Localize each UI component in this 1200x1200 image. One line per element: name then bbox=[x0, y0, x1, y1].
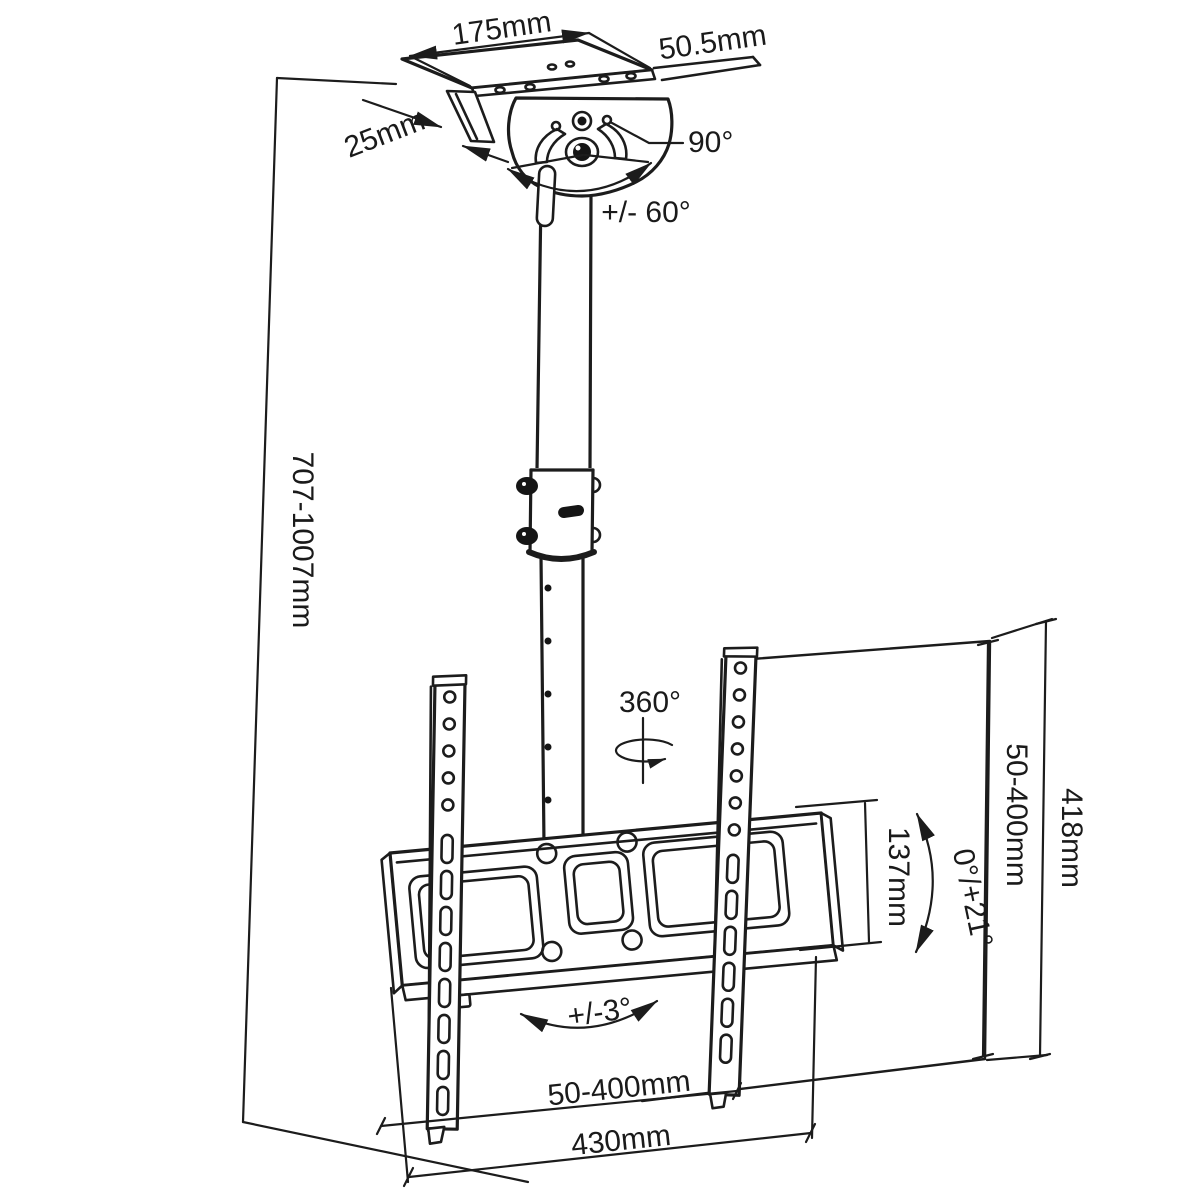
rail-hole bbox=[731, 770, 742, 781]
dim-label-418mm: 418mm bbox=[1055, 788, 1088, 888]
extension-pole-lower bbox=[541, 550, 583, 845]
rail-hole bbox=[442, 799, 453, 810]
dim-level-adjust-range: +/-3° bbox=[521, 992, 657, 1034]
locking-knob bbox=[516, 477, 538, 495]
hinge-slot-tab bbox=[536, 166, 555, 227]
rail-slot bbox=[724, 927, 736, 955]
diagram-canvas: 175mm 50.5mm 25mm 90° +/- 60° 707-1007mm… bbox=[0, 0, 1200, 1200]
dim-label-50-400mm-horizontal: 50-400mm bbox=[546, 1065, 692, 1113]
rail-slot bbox=[439, 979, 450, 1007]
rail-hole bbox=[444, 718, 455, 729]
dim-label-90deg: 90° bbox=[688, 126, 733, 159]
dim-label-50-400mm-vertical: 50-400mm bbox=[1000, 743, 1033, 886]
rail-slot bbox=[723, 963, 735, 991]
tube-clip bbox=[593, 528, 600, 542]
rail-foot bbox=[428, 1127, 444, 1144]
pole-adjustment-hole bbox=[545, 691, 552, 698]
dim-label-50-5mm: 50.5mm bbox=[657, 19, 769, 67]
dim-rotation-range: 360° bbox=[616, 686, 681, 783]
pole-adjustment-hole bbox=[545, 744, 552, 751]
rail-hole bbox=[443, 772, 454, 783]
rail-slot bbox=[727, 855, 739, 883]
rail-slot bbox=[720, 1035, 732, 1063]
dim-label-430mm: 430mm bbox=[570, 1119, 673, 1162]
dim-label-plusminus60deg: +/- 60° bbox=[601, 196, 691, 229]
rail-hole bbox=[734, 689, 745, 700]
rail-slot bbox=[440, 907, 451, 935]
rail-hole bbox=[730, 797, 741, 808]
rail-slot bbox=[439, 943, 450, 971]
dim-label-0-21deg: 0°/+21° bbox=[946, 846, 999, 951]
rail-slot bbox=[438, 1015, 449, 1043]
rail-hole bbox=[729, 824, 740, 835]
rail-hole bbox=[443, 745, 454, 756]
rail-hole bbox=[733, 716, 744, 727]
rail-slot bbox=[721, 999, 733, 1027]
ceiling-plate-flange bbox=[447, 91, 494, 142]
rail-slot bbox=[438, 1051, 449, 1079]
vesa-rail-left bbox=[423, 675, 466, 1145]
rail-hole bbox=[444, 691, 455, 702]
dim-label-360deg: 360° bbox=[619, 686, 681, 719]
rail-slot bbox=[441, 871, 452, 899]
dim-ceiling-plate-depth: 50.5mm bbox=[657, 19, 769, 67]
rail-slot bbox=[441, 835, 452, 863]
rail-foot bbox=[710, 1092, 727, 1109]
dim-height-range: 707-1007mm bbox=[243, 78, 528, 1182]
pole-adjustment-hole bbox=[545, 797, 552, 804]
rail-slot bbox=[437, 1087, 448, 1115]
dim-label-plusminus3deg: +/-3° bbox=[565, 992, 633, 1034]
rail-hole bbox=[735, 662, 746, 673]
telescoping-tube bbox=[516, 468, 600, 559]
locking-knob bbox=[516, 527, 538, 545]
pole-adjustment-hole bbox=[545, 585, 552, 592]
dim-label-25mm: 25mm bbox=[340, 104, 430, 165]
extension-pole-upper bbox=[537, 194, 591, 470]
rail-slot bbox=[725, 891, 737, 919]
tv-ceiling-mount-diagram: 175mm 50.5mm 25mm 90° +/- 60° 707-1007mm… bbox=[0, 0, 1200, 1200]
dim-vesa-vertical-range: 50-400mm bbox=[973, 640, 1033, 1059]
rail-hole bbox=[732, 743, 743, 754]
pole-adjustment-hole bbox=[545, 638, 552, 645]
dim-label-707-1007mm: 707-1007mm bbox=[286, 452, 319, 629]
dim-label-137mm: 137mm bbox=[882, 827, 915, 927]
